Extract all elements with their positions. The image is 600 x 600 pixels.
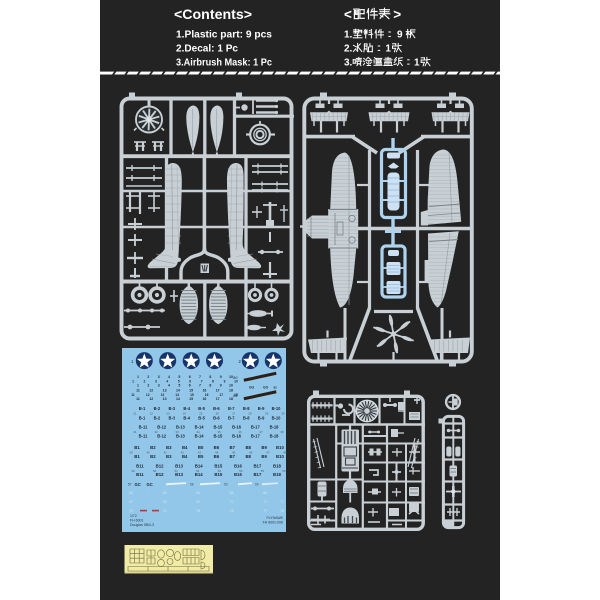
svg-text:B-18: B-18	[270, 425, 280, 430]
svg-text:71: 71	[263, 500, 267, 504]
svg-text:B-15: B-15	[213, 434, 223, 439]
svg-text:46: 46	[249, 451, 253, 455]
svg-text:B-2: B-2	[154, 416, 161, 421]
svg-text:17: 17	[219, 393, 223, 397]
svg-text:57: 57	[128, 483, 132, 487]
svg-text:-: -	[214, 500, 215, 504]
svg-text:B-11: B-11	[139, 425, 148, 430]
svg-text:4: 4	[168, 375, 170, 379]
svg-text:B16: B16	[234, 464, 242, 469]
svg-text:58: 58	[190, 483, 194, 487]
svg-text:2: 2	[143, 379, 145, 383]
svg-text:11: 11	[136, 389, 140, 393]
svg-text:3: 3	[155, 379, 157, 383]
svg-text:FLYHAWK: FLYHAWK	[266, 516, 283, 520]
svg-text:B-10: B-10	[272, 406, 282, 411]
svg-text:50: 50	[153, 469, 157, 473]
svg-text:B-12: B-12	[157, 425, 167, 430]
svg-text:2: 2	[147, 375, 149, 379]
svg-text:39: 39	[129, 451, 133, 455]
svg-text:11: 11	[131, 393, 135, 397]
svg-text:B13: B13	[175, 464, 183, 469]
svg-text:41: 41	[164, 451, 168, 455]
svg-text:37: 37	[259, 430, 263, 434]
svg-text:B-3: B-3	[168, 416, 175, 421]
svg-text:12: 12	[149, 397, 153, 401]
svg-text:-: -	[248, 491, 249, 495]
svg-text:B-13: B-13	[176, 425, 186, 430]
svg-text:3: 3	[158, 375, 160, 379]
svg-text:45: 45	[232, 451, 236, 455]
svg-text:15: 15	[189, 397, 193, 401]
svg-text:>: >	[393, 7, 401, 22]
svg-text:-: -	[147, 500, 148, 504]
svg-text:64: 64	[196, 491, 200, 495]
svg-text:2.Decal: 1 Pc: 2.Decal: 1 Pc	[176, 44, 238, 55]
svg-text:3.Airbrush Mask: 1 Pc: 3.Airbrush Mask: 1 Pc	[176, 58, 272, 69]
svg-text:59: 59	[224, 483, 228, 487]
svg-text:B7: B7	[230, 445, 236, 450]
svg-text:8: 8	[209, 375, 211, 379]
svg-text:B7: B7	[230, 454, 236, 459]
svg-text:B-3: B-3	[168, 406, 175, 411]
svg-text:Douglas SBD-3: Douglas SBD-3	[130, 523, 154, 527]
svg-text:B4: B4	[182, 454, 188, 459]
svg-text:54: 54	[239, 469, 243, 473]
svg-text:B10: B10	[276, 445, 284, 450]
svg-text:33: 33	[175, 430, 179, 434]
svg-text:55: 55	[261, 469, 265, 473]
svg-text:B14: B14	[195, 464, 203, 469]
svg-text:B-16: B-16	[232, 434, 242, 439]
svg-text:B15: B15	[214, 464, 222, 469]
svg-text:B-12: B-12	[157, 434, 167, 439]
svg-text:5: 5	[178, 384, 180, 388]
svg-text:23: 23	[166, 412, 170, 416]
svg-text:-: -	[214, 491, 215, 495]
svg-text:7: 7	[199, 384, 201, 388]
svg-text:GO: GO	[263, 386, 269, 390]
svg-text:24: 24	[183, 412, 187, 416]
svg-text:62: 62	[129, 491, 133, 495]
svg-text:B10: B10	[276, 454, 284, 459]
svg-text:B-17: B-17	[251, 425, 261, 430]
svg-text:82: 82	[274, 386, 278, 390]
svg-text:56: 56	[282, 469, 286, 473]
svg-text:B-5: B-5	[198, 416, 205, 421]
svg-text:B-14: B-14	[195, 425, 205, 430]
svg-text:52: 52	[196, 469, 200, 473]
svg-text:B3: B3	[166, 454, 172, 459]
svg-text:38: 38	[280, 430, 284, 434]
svg-text:<: <	[344, 7, 352, 22]
svg-text:B-1: B-1	[139, 416, 146, 421]
svg-text:-: -	[281, 491, 282, 495]
svg-text:9: 9	[220, 375, 222, 379]
svg-text:35: 35	[217, 430, 221, 434]
svg-text:B8: B8	[245, 454, 251, 459]
svg-text:B12: B12	[156, 464, 164, 469]
svg-text:B-17: B-17	[251, 434, 261, 439]
svg-text:22: 22	[150, 412, 154, 416]
svg-text:B-6: B-6	[213, 416, 220, 421]
svg-text:49: 49	[131, 469, 135, 473]
svg-text:30: 30	[281, 412, 285, 416]
svg-text:4: 4	[168, 384, 170, 388]
svg-text:8: 8	[209, 384, 211, 388]
svg-text:B12: B12	[156, 472, 164, 477]
svg-text:B-8: B-8	[243, 416, 250, 421]
svg-text:72: 72	[280, 500, 284, 504]
svg-text:B18: B18	[273, 472, 281, 477]
svg-text:B-18: B-18	[270, 434, 280, 439]
svg-text:-: -	[214, 509, 215, 513]
svg-text:76: 76	[230, 509, 234, 513]
svg-text:26: 26	[216, 412, 220, 416]
svg-text:2.: 2.	[344, 44, 353, 55]
svg-text:1: 1	[132, 379, 134, 383]
svg-text:60: 60	[255, 483, 259, 487]
svg-text:B-9: B-9	[258, 406, 265, 411]
svg-text:-: -	[181, 500, 182, 504]
svg-text:81: 81	[233, 394, 237, 398]
svg-text:1/72: 1/72	[130, 514, 137, 518]
svg-text:3: 3	[158, 384, 160, 388]
svg-text:B-6: B-6	[213, 406, 220, 411]
svg-text:21: 21	[133, 412, 137, 416]
svg-text:B-15: B-15	[213, 425, 223, 430]
svg-text:63: 63	[163, 491, 167, 495]
svg-text:3.: 3.	[344, 58, 353, 69]
svg-text:67: 67	[129, 500, 133, 504]
svg-text:9: 9	[220, 384, 222, 388]
svg-text:17: 17	[216, 397, 220, 401]
svg-text:44: 44	[215, 451, 219, 455]
svg-text:2: 2	[147, 384, 149, 388]
svg-text:FH 6001: FH 6001	[130, 519, 143, 523]
svg-text:-: -	[181, 491, 182, 495]
svg-text:B1: B1	[134, 454, 140, 459]
svg-text:B-9: B-9	[258, 416, 265, 421]
svg-text:B4: B4	[182, 445, 188, 450]
svg-text:B18: B18	[273, 464, 281, 469]
svg-text:7: 7	[201, 379, 203, 383]
svg-text:6: 6	[189, 384, 191, 388]
svg-text:B1: B1	[134, 445, 140, 450]
svg-text:66: 66	[263, 491, 267, 495]
svg-text:B8: B8	[245, 445, 251, 450]
svg-text:B9: B9	[261, 445, 267, 450]
svg-text:80: 80	[233, 376, 237, 380]
svg-text:53: 53	[218, 469, 222, 473]
svg-text:58: 58	[163, 500, 167, 504]
svg-text:B-2: B-2	[154, 406, 161, 411]
svg-text:51: 51	[174, 469, 178, 473]
svg-text:14: 14	[176, 397, 180, 401]
svg-text:-: -	[147, 509, 148, 513]
svg-text:48: 48	[283, 451, 287, 455]
svg-text:25: 25	[199, 412, 203, 416]
svg-text:B9: B9	[261, 454, 267, 459]
svg-text:12: 12	[149, 389, 153, 393]
svg-text:74: 74	[163, 509, 167, 513]
svg-text:9: 9	[224, 379, 226, 383]
svg-text:B-7: B-7	[228, 416, 235, 421]
svg-text:70: 70	[230, 500, 234, 504]
svg-text:1.: 1.	[344, 30, 353, 41]
svg-text:B2: B2	[150, 445, 156, 450]
svg-text:16: 16	[202, 397, 206, 401]
svg-text:13: 13	[163, 397, 167, 401]
svg-text:65: 65	[230, 491, 234, 495]
svg-text:<Contents>: <Contents>	[174, 7, 252, 22]
svg-text:B3: B3	[166, 445, 172, 450]
svg-text:31: 31	[133, 430, 137, 434]
svg-text:36: 36	[238, 430, 242, 434]
svg-text:75: 75	[196, 509, 200, 513]
svg-text:-: -	[248, 509, 249, 513]
svg-text:B5: B5	[198, 445, 204, 450]
svg-text:GU: GU	[249, 386, 255, 390]
svg-text:10: 10	[229, 384, 233, 388]
svg-text:B-13: B-13	[176, 434, 186, 439]
svg-text:B-14: B-14	[195, 434, 205, 439]
svg-text:B-16: B-16	[232, 425, 242, 430]
svg-text:1: 1	[414, 58, 420, 69]
svg-text:73: 73	[129, 509, 133, 513]
svg-text:18: 18	[229, 389, 233, 393]
svg-text:11: 11	[136, 397, 140, 401]
svg-text:B11: B11	[136, 472, 144, 477]
svg-text:29: 29	[265, 412, 269, 416]
svg-text:27: 27	[232, 412, 236, 416]
svg-text:GC: GC	[135, 482, 141, 487]
svg-text:28: 28	[248, 412, 252, 416]
svg-text:42: 42	[181, 451, 185, 455]
svg-text:B-1: B-1	[139, 406, 146, 411]
svg-text:B-8: B-8	[243, 406, 250, 411]
svg-text:1: 1	[137, 384, 139, 388]
svg-text:8: 8	[212, 379, 214, 383]
svg-text:78: 78	[280, 509, 284, 513]
svg-text:GC: GC	[147, 482, 153, 487]
svg-text:B-7: B-7	[228, 406, 235, 411]
svg-text:1: 1	[385, 44, 391, 55]
svg-text:40: 40	[146, 451, 150, 455]
svg-text:1: 1	[137, 375, 139, 379]
svg-text:FH 6001-006: FH 6001-006	[263, 521, 283, 525]
svg-text:B2: B2	[150, 454, 156, 459]
svg-text:B-10: B-10	[272, 416, 282, 421]
svg-text:34: 34	[196, 430, 200, 434]
svg-text:-: -	[181, 509, 182, 513]
svg-text:B17: B17	[253, 464, 261, 469]
svg-text:47: 47	[266, 451, 270, 455]
svg-text:1.Plastic part: 9 pcs: 1.Plastic part: 9 pcs	[176, 30, 272, 41]
svg-text:32: 32	[154, 430, 158, 434]
svg-text:B6: B6	[214, 445, 220, 450]
svg-text:B6: B6	[214, 454, 220, 459]
svg-text:43: 43	[198, 451, 202, 455]
svg-text:-: -	[147, 491, 148, 495]
svg-text:9: 9	[397, 30, 403, 41]
svg-text:77: 77	[263, 509, 267, 513]
svg-text:B11: B11	[136, 464, 144, 469]
svg-text:-: -	[248, 500, 249, 504]
svg-text:B-5: B-5	[198, 406, 205, 411]
svg-text:69: 69	[196, 500, 200, 504]
svg-text:B-11: B-11	[139, 434, 148, 439]
svg-text:B-4: B-4	[183, 406, 190, 411]
svg-text:B-4: B-4	[183, 416, 190, 421]
svg-text:B5: B5	[198, 454, 204, 459]
